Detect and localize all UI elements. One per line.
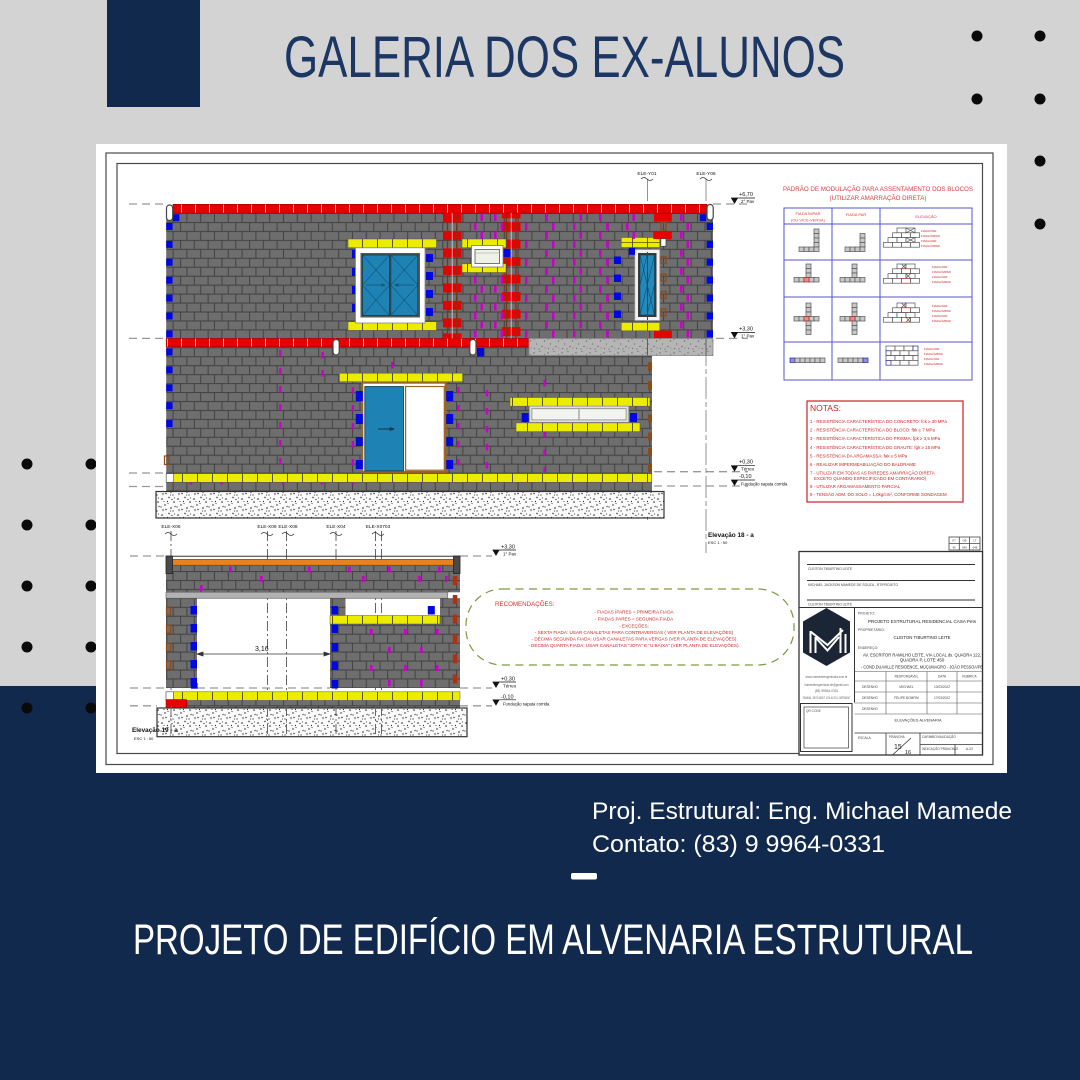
svg-text:Térreo: Térreo xyxy=(741,467,755,472)
svg-text:- EXCEÇÕES:: - EXCEÇÕES: xyxy=(619,623,649,629)
svg-text:PROPRIETÁRIO:: PROPRIETÁRIO: xyxy=(858,628,885,632)
svg-text:www.mamedeengenharia.com.br: www.mamedeengenharia.com.br xyxy=(806,675,849,679)
svg-text:FIADA PAR: FIADA PAR xyxy=(846,212,867,217)
svg-text:FIADA ÍMPAR: FIADA ÍMPAR xyxy=(795,211,820,216)
svg-text:Elevação 18 - a: Elevação 18 - a xyxy=(708,532,754,539)
svg-text:6 - REALIZAR IMPERMEABILIAÇÃO: 6 - REALIZAR IMPERMEABILIAÇÃO DO BALDRAM… xyxy=(810,462,916,467)
svg-text:DESENHO: DESENHO xyxy=(862,685,878,689)
svg-text:17/03/2022: 17/03/2022 xyxy=(934,696,950,700)
svg-text:DATA: DATA xyxy=(938,675,947,679)
svg-text:4 - RESISTÊNCIA CARACTERÍSTICA: 4 - RESISTÊNCIA CARACTERÍSTICA DO GRAUTE… xyxy=(810,445,941,450)
svg-text:GB: GB xyxy=(962,539,966,543)
svg-text:CLEITON TIBURTINO LEITE: CLEITON TIBURTINO LEITE xyxy=(893,635,950,640)
svg-text:ELEVAÇÃO: ELEVAÇÃO xyxy=(915,214,936,219)
svg-text:+3,30: +3,30 xyxy=(501,545,515,551)
svg-text:8 - UTILIZAR ARGAMASSAMENTO PA: 8 - UTILIZAR ARGAMASSAMENTO PARCIAL xyxy=(810,484,901,489)
svg-text:046: 046 xyxy=(973,546,978,550)
svg-text:Fundação sapata corrida: Fundação sapata corrida xyxy=(741,482,788,487)
svg-text:-0,10: -0,10 xyxy=(739,474,752,480)
svg-text:QR CODE: QR CODE xyxy=(806,709,821,713)
svg-text:ELE-X06: ELE-X06 xyxy=(161,524,181,530)
svg-text:FIADA ÍMPAR: FIADA ÍMPAR xyxy=(921,244,941,248)
svg-text:ELE-Y06: ELE-Y06 xyxy=(696,171,716,177)
svg-text:- DÉCIMA SEGUNDA FIADA: USAR C: - DÉCIMA SEGUNDA FIADA: USAR CANALETAS P… xyxy=(532,636,737,642)
svg-text:RESPONSÁVEL: RESPONSÁVEL xyxy=(895,675,919,679)
svg-text:Contato: (83) 9 9964-0331: Contato: (83) 9 9964-0331 xyxy=(592,831,885,858)
svg-text:+0,30: +0,30 xyxy=(501,677,515,683)
svg-text:3 - RESISTÊNCIA CARACTERÍSTICA: 3 - RESISTÊNCIA CARACTERÍSTICA DO PRISMA… xyxy=(810,436,941,441)
svg-text:ELE-X09: ELE-X09 xyxy=(257,524,277,530)
svg-text:3,16: 3,16 xyxy=(255,646,269,653)
svg-text:PROJETO ESTRUTURAL RESIDENCIAL: PROJETO ESTRUTURAL RESIDENCIAL CASA Pets xyxy=(868,619,977,624)
svg-text:-0,10: -0,10 xyxy=(501,694,514,700)
svg-text:9 - TENSÃO ADM. DO SOLO = 1,0k: 9 - TENSÃO ADM. DO SOLO = 1,0kg/cm², CON… xyxy=(810,492,947,497)
svg-text:FIADA ÍMPAR: FIADA ÍMPAR xyxy=(932,280,952,284)
svg-text:ELEVAÇÕES ALVENARIA: ELEVAÇÕES ALVENARIA xyxy=(895,718,942,723)
svg-text:FIADA ÍMPAR: FIADA ÍMPAR xyxy=(932,270,952,274)
svg-text:LT: LT xyxy=(973,539,976,543)
svg-text:QUADRA P, LOTE 450: QUADRA P, LOTE 450 xyxy=(900,658,945,663)
svg-text:ELE-X0703: ELE-X0703 xyxy=(366,524,391,530)
svg-text:7 - UTILIZAR EM TODAS AS PARED: 7 - UTILIZAR EM TODAS AS PAREDES AMARRAÇ… xyxy=(810,471,935,476)
svg-text:UT: UT xyxy=(952,539,956,543)
svg-text:1 - RESISTÊNCIA CARACTERÍSTICA: 1 - RESISTÊNCIA CARACTERÍSTICA DO CONCRE… xyxy=(810,419,947,424)
svg-text:Fundação sapata corrida: Fundação sapata corrida xyxy=(503,701,550,706)
svg-text:PROJETO:: PROJETO: xyxy=(858,612,875,616)
svg-text:Térreo: Térreo xyxy=(503,684,517,689)
svg-text:FIADA PAR: FIADA PAR xyxy=(932,304,948,308)
svg-text:13/03/2022: 13/03/2022 xyxy=(934,685,950,689)
svg-text:2° Pav: 2° Pav xyxy=(741,199,755,204)
svg-text:ENDEREÇO:: ENDEREÇO: xyxy=(858,646,878,650)
svg-text:Proj. Estrutural: Eng. Michael: Proj. Estrutural: Eng. Michael Mamede xyxy=(592,798,1012,825)
svg-text:+3,30: +3,30 xyxy=(739,326,753,332)
svg-text:FIADA PAR: FIADA PAR xyxy=(921,229,937,233)
svg-text:TAMBIA, 35/70-853 F-V24 AV.201: TAMBIA, 35/70-853 F-V24 AV.201 JMP/36047 xyxy=(803,696,851,700)
svg-text:Elevação 19 - a: Elevação 19 - a xyxy=(132,727,178,734)
svg-text:ELE-X08: ELE-X08 xyxy=(278,524,298,530)
svg-text:FIADA ÍMPAR: FIADA ÍMPAR xyxy=(924,362,944,366)
svg-text:FIADA PAR: FIADA PAR xyxy=(932,265,948,269)
svg-text:INDICAÇÃO PRANCHAS: INDICAÇÃO PRANCHAS xyxy=(922,746,958,751)
svg-text:- FIADAS ÍPARES = PRIMEIRA FIA: - FIADAS ÍPARES = PRIMEIRA FIADA xyxy=(594,609,674,615)
svg-text:CLEITON TIBURTINO LEITE: CLEITON TIBURTINO LEITE xyxy=(808,567,853,571)
svg-text:- DÉCIMA QUARTA FIADA: USAR CA: - DÉCIMA QUARTA FIADA: USAR CANALETAS "J… xyxy=(528,642,740,648)
svg-text:PADRÃO DE MODULAÇÃO PARA ASSEN: PADRÃO DE MODULAÇÃO PARA ASSENTAMENTO DO… xyxy=(783,186,973,193)
svg-text:+0,30: +0,30 xyxy=(739,460,753,466)
svg-text:CARIMBO/VALIDAÇÃO: CARIMBO/VALIDAÇÃO xyxy=(922,734,956,739)
svg-text:040: 040 xyxy=(962,546,967,550)
svg-text:FIADA PAR: FIADA PAR xyxy=(921,239,937,243)
svg-text:(UTILIZAR AMARRAÇÃO DIRETA): (UTILIZAR AMARRAÇÃO DIRETA) xyxy=(830,195,927,202)
svg-text:PRANCHA: PRANCHA xyxy=(889,735,905,739)
svg-text:1° Pav: 1° Pav xyxy=(503,552,517,557)
svg-text:MICHAEL JACKSON MAMEDE DE SOUZ: MICHAEL JACKSON MAMEDE DE SOUZA - RT/PRO… xyxy=(808,583,899,587)
svg-text:FIADA PAR: FIADA PAR xyxy=(932,275,948,279)
svg-text:1° Pav: 1° Pav xyxy=(741,333,755,338)
svg-text:- FIADAS PARES = SEGUNDA FIADA: - FIADAS PARES = SEGUNDA FIADA xyxy=(595,617,674,622)
svg-text:(OU VICE-VERSA): (OU VICE-VERSA) xyxy=(791,218,826,223)
svg-text:2 - RESISTÊNCIA CARACTERÍSTICA: 2 - RESISTÊNCIA CARACTERÍSTICA DO BLOCO:… xyxy=(810,428,935,433)
svg-text:A-03: A-03 xyxy=(966,747,973,751)
svg-text:ESC 1 : 50: ESC 1 : 50 xyxy=(708,540,728,545)
svg-text:FIADA ÍMPAR: FIADA ÍMPAR xyxy=(924,352,944,356)
svg-text:ESCALA: ESCALA xyxy=(858,736,871,740)
svg-text:RUBRICA: RUBRICA xyxy=(962,675,977,679)
svg-text:NOTAS:: NOTAS: xyxy=(810,403,841,413)
svg-text:FIADA PAR: FIADA PAR xyxy=(932,314,948,318)
svg-text:FIADA PAR: FIADA PAR xyxy=(924,357,940,361)
svg-text:16: 16 xyxy=(905,750,911,756)
svg-text:45: 45 xyxy=(952,546,956,550)
svg-text:- SEXTA FIADA: USAR CANALETAS: - SEXTA FIADA: USAR CANALETAS PARA CONTR… xyxy=(535,629,734,635)
svg-text:CLEITON TIBURTINO LEITE: CLEITON TIBURTINO LEITE xyxy=(808,603,853,607)
svg-text:EXCETO QUANDO ESPECIFICADO EM: EXCETO QUANDO ESPECIFICADO EM CONTÁRARIO… xyxy=(814,476,927,481)
svg-text:+6,70: +6,70 xyxy=(739,192,753,198)
svg-text:FIADA ÍMPAR: FIADA ÍMPAR xyxy=(932,319,952,323)
svg-text:DESENHO: DESENHO xyxy=(862,696,878,700)
svg-text:5 - RESISTÊNCIA DA ARGAMASSA:: 5 - RESISTÊNCIA DA ARGAMASSA: fak ≥ 5 MP… xyxy=(810,453,908,458)
svg-text:- COND.DUAVILLE RESIDENCE, MUÇ: - COND.DUAVILLE RESIDENCE, MUÇUMAGRO - J… xyxy=(861,665,983,670)
svg-text:PROJETO DE EDIFÍCIO EM ALVENAR: PROJETO DE EDIFÍCIO EM ALVENARIA ESTRUTU… xyxy=(133,917,973,964)
svg-text:ELE-X04: ELE-X04 xyxy=(326,524,346,530)
svg-text:ESC 1 : 50: ESC 1 : 50 xyxy=(134,736,154,741)
svg-text:FIADA ÍMPAR: FIADA ÍMPAR xyxy=(921,234,941,238)
svg-text:(83) 99964-0331: (83) 99964-0331 xyxy=(815,689,839,693)
svg-text:FIADA ÍMPAR: FIADA ÍMPAR xyxy=(932,309,952,313)
svg-text:ELE-Y01: ELE-Y01 xyxy=(637,171,657,177)
svg-text:GALERIA DOS EX-ALUNOS: GALERIA DOS EX-ALUNOS xyxy=(284,25,845,90)
svg-text:DESENHO: DESENHO xyxy=(862,707,878,711)
svg-text:MICHAEL: MICHAEL xyxy=(899,685,913,689)
svg-text:RECOMENDAÇÕES:: RECOMENDAÇÕES: xyxy=(495,601,555,608)
svg-text:FELIPE BOMFIM: FELIPE BOMFIM xyxy=(894,696,919,700)
svg-text:mamedeengenharia.rte@gmail.com: mamedeengenharia.rte@gmail.com xyxy=(805,683,849,687)
svg-text:FIADA PAR: FIADA PAR xyxy=(924,347,940,351)
